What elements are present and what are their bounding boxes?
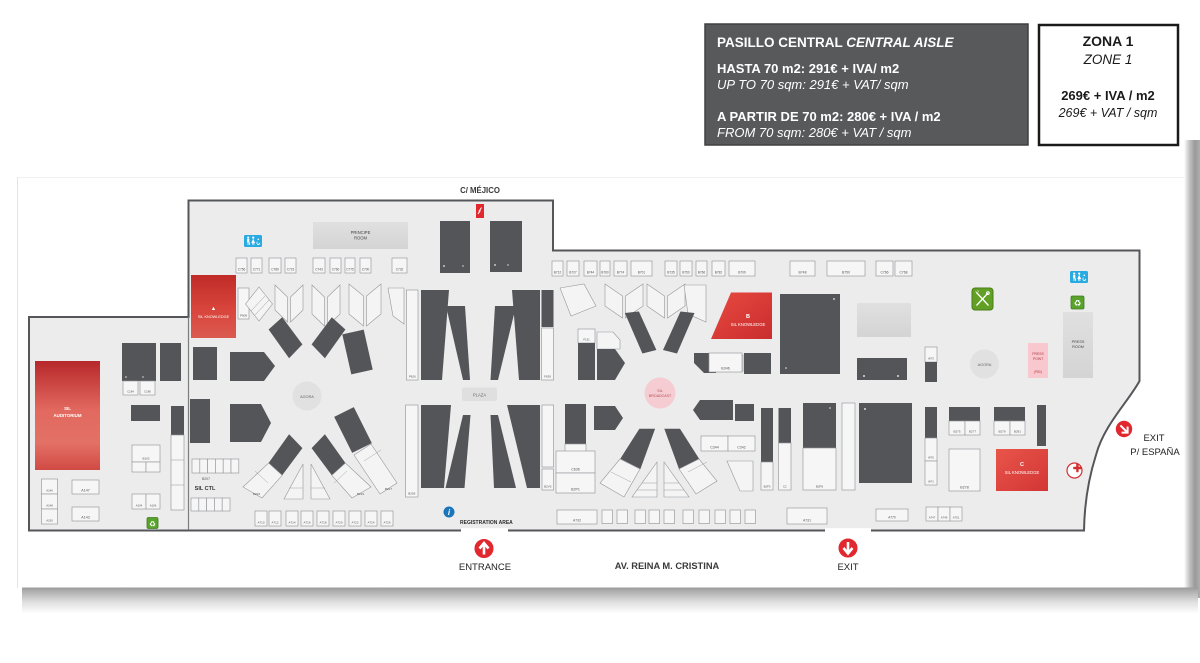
svg-text:A720: A720: [335, 521, 342, 525]
svg-text:B219: B219: [357, 492, 364, 496]
svg-text:P608: P608: [240, 314, 247, 318]
svg-text:HASTA 70 m2: 291€ + IVA/ m2: HASTA 70 m2: 291€ + IVA/ m2: [717, 61, 899, 76]
svg-text:C732: C732: [396, 268, 404, 272]
svg-text:C768: C768: [899, 271, 907, 275]
svg-text:PASILLO CENTRAL CENTRAL AISLE: PASILLO CENTRAL CENTRAL AISLE: [717, 35, 955, 50]
svg-text:(P80): (P80): [1034, 370, 1042, 374]
svg-text:B2P5: B2P5: [816, 485, 824, 489]
svg-text:AGORA: AGORA: [978, 363, 992, 367]
svg-text:B744: B744: [587, 271, 595, 275]
svg-text:A147: A147: [81, 489, 89, 493]
svg-text:A716: A716: [303, 521, 310, 525]
svg-text:C775: C775: [346, 268, 354, 272]
svg-text:AUDITORIUM: AUDITORIUM: [54, 413, 82, 418]
svg-text:ROOM: ROOM: [1072, 345, 1084, 349]
svg-text:B760: B760: [601, 271, 609, 275]
svg-text:B782: B782: [715, 271, 723, 275]
svg-text:SIL: SIL: [64, 406, 71, 411]
svg-text:A106: A106: [150, 504, 157, 508]
svg-text:C760: C760: [332, 268, 340, 272]
svg-text:B346: B346: [721, 367, 729, 371]
svg-text:C715: C715: [287, 268, 295, 272]
svg-text:C344: C344: [710, 446, 719, 450]
svg-text:A143: A143: [81, 516, 89, 520]
svg-text:PRESS: PRESS: [1072, 340, 1085, 344]
svg-text:B278: B278: [960, 486, 968, 490]
svg-text:269€ + IVA / m2: 269€ + IVA / m2: [1061, 88, 1155, 103]
svg-text:A751: A751: [953, 516, 960, 520]
svg-text:A770: A770: [888, 516, 896, 520]
svg-text:C/ MÉJICO: C/ MÉJICO: [460, 186, 500, 195]
svg-text:B229: B229: [253, 492, 260, 496]
svg-text:AGORA: AGORA: [300, 395, 314, 399]
svg-text:A714: A714: [288, 521, 295, 525]
svg-text:B709: B709: [738, 271, 746, 275]
svg-text:B209: B209: [408, 492, 415, 496]
svg-text:B277: B277: [969, 430, 976, 434]
svg-text:A PARTIR DE 70 m2: 280€ + IVA: A PARTIR DE 70 m2: 280€ + IVA / m2: [717, 109, 941, 124]
svg-text:A722: A722: [351, 521, 358, 525]
svg-text:B281: B281: [1014, 430, 1021, 434]
svg-text:B712: B712: [554, 271, 562, 275]
svg-text:♻: ♻: [149, 520, 156, 529]
svg-text:AV. REINA M. CRISTINA: AV. REINA M. CRISTINA: [615, 561, 720, 571]
svg-text:ZONA 1: ZONA 1: [1083, 33, 1134, 49]
svg-text:A724: A724: [367, 521, 374, 525]
svg-text:P/ ESPAÑA: P/ ESPAÑA: [1130, 447, 1180, 458]
svg-text:PRINCIPE: PRINCIPE: [351, 230, 371, 235]
svg-text:C756: C756: [238, 268, 246, 272]
svg-text:A718: A718: [319, 521, 326, 525]
svg-text:SIL: SIL: [657, 389, 662, 393]
svg-text:269€ + VAT / sqm: 269€ + VAT / sqm: [1058, 106, 1158, 120]
svg-text:B748: B748: [799, 271, 807, 275]
svg-text:C700: C700: [362, 268, 370, 272]
svg-text:B102: B102: [142, 457, 149, 461]
svg-text:SIL KNOWLEDGE: SIL KNOWLEDGE: [1005, 470, 1040, 475]
svg-text:PRESS: PRESS: [1032, 352, 1044, 356]
svg-text:B279: B279: [998, 430, 1005, 434]
svg-text:B207: B207: [202, 477, 210, 481]
svg-text:EXIT: EXIT: [1143, 433, 1164, 444]
svg-text:B2P3: B2P3: [764, 485, 771, 489]
svg-text:W73: W73: [928, 357, 934, 361]
svg-text:FROM 70 sqm: 280€ + VAT / sqm: FROM 70 sqm: 280€ + VAT / sqm: [717, 125, 912, 140]
svg-text:B750: B750: [842, 271, 850, 275]
svg-text:B2P1: B2P1: [571, 488, 580, 492]
svg-text:A749: A749: [941, 516, 948, 520]
svg-text:POINT: POINT: [1033, 357, 1043, 361]
svg-text:B275: B275: [953, 430, 960, 434]
svg-text:C771: C771: [253, 268, 261, 272]
svg-text:C636: C636: [571, 468, 580, 472]
svg-text:B727: B727: [569, 271, 577, 275]
svg-text:EXIT: EXIT: [837, 562, 858, 573]
svg-text:B774: B774: [617, 271, 625, 275]
svg-text:A731: A731: [803, 519, 811, 523]
svg-text:C342: C342: [737, 446, 746, 450]
svg-text:B: B: [746, 314, 750, 320]
svg-text:F131: F131: [583, 338, 590, 342]
svg-text:C: C: [1020, 462, 1024, 468]
svg-text:B750: B750: [682, 271, 690, 275]
svg-text:PLAZA: PLAZA: [473, 393, 486, 398]
svg-text:B701: B701: [638, 271, 646, 275]
svg-text:REGISTRATION AREA: REGISTRATION AREA: [460, 520, 513, 526]
svg-text:W71: W71: [928, 480, 934, 484]
svg-text:W75: W75: [928, 456, 934, 460]
svg-text:▲: ▲: [211, 306, 216, 312]
svg-text:B2V5: B2V5: [544, 485, 552, 489]
svg-text:A710: A710: [257, 521, 264, 525]
svg-text:C789: C789: [271, 268, 279, 272]
svg-text:A148: A148: [46, 504, 53, 508]
svg-text:C2: C2: [783, 485, 787, 489]
svg-text:BROADCAST: BROADCAST: [649, 394, 672, 398]
svg-text:ENTRANCE: ENTRANCE: [459, 562, 511, 573]
svg-text:P626: P626: [409, 375, 416, 379]
svg-text:A104: A104: [136, 504, 143, 508]
svg-text:C743: C743: [315, 268, 323, 272]
svg-text:C766: C766: [880, 271, 888, 275]
svg-text:B735: B735: [667, 271, 675, 275]
svg-text:ZONE 1: ZONE 1: [1083, 52, 1133, 67]
svg-text:C186: C186: [144, 390, 151, 394]
svg-text:A712: A712: [271, 521, 278, 525]
svg-text:UP TO 70 sqm: 291€ + VAT/ sqm: UP TO 70 sqm: 291€ + VAT/ sqm: [717, 77, 909, 92]
svg-text:ROOM: ROOM: [354, 236, 368, 241]
svg-text:SIL KNOWLEDGE: SIL KNOWLEDGE: [198, 315, 230, 319]
svg-text:A726: A726: [383, 521, 390, 525]
svg-text:F639: F639: [544, 375, 551, 379]
svg-text:C184: C184: [127, 390, 134, 394]
svg-text:♻: ♻: [1074, 298, 1082, 308]
svg-text:SIL KNOWLEDGE: SIL KNOWLEDGE: [731, 322, 766, 327]
svg-text:A747: A747: [929, 516, 936, 520]
svg-text:B217: B217: [385, 487, 392, 491]
svg-text:B766: B766: [698, 271, 706, 275]
svg-text:SIL CTL: SIL CTL: [195, 486, 216, 492]
svg-text:A146: A146: [46, 489, 53, 493]
svg-text:A732: A732: [573, 519, 581, 523]
svg-text:A150: A150: [46, 519, 53, 523]
